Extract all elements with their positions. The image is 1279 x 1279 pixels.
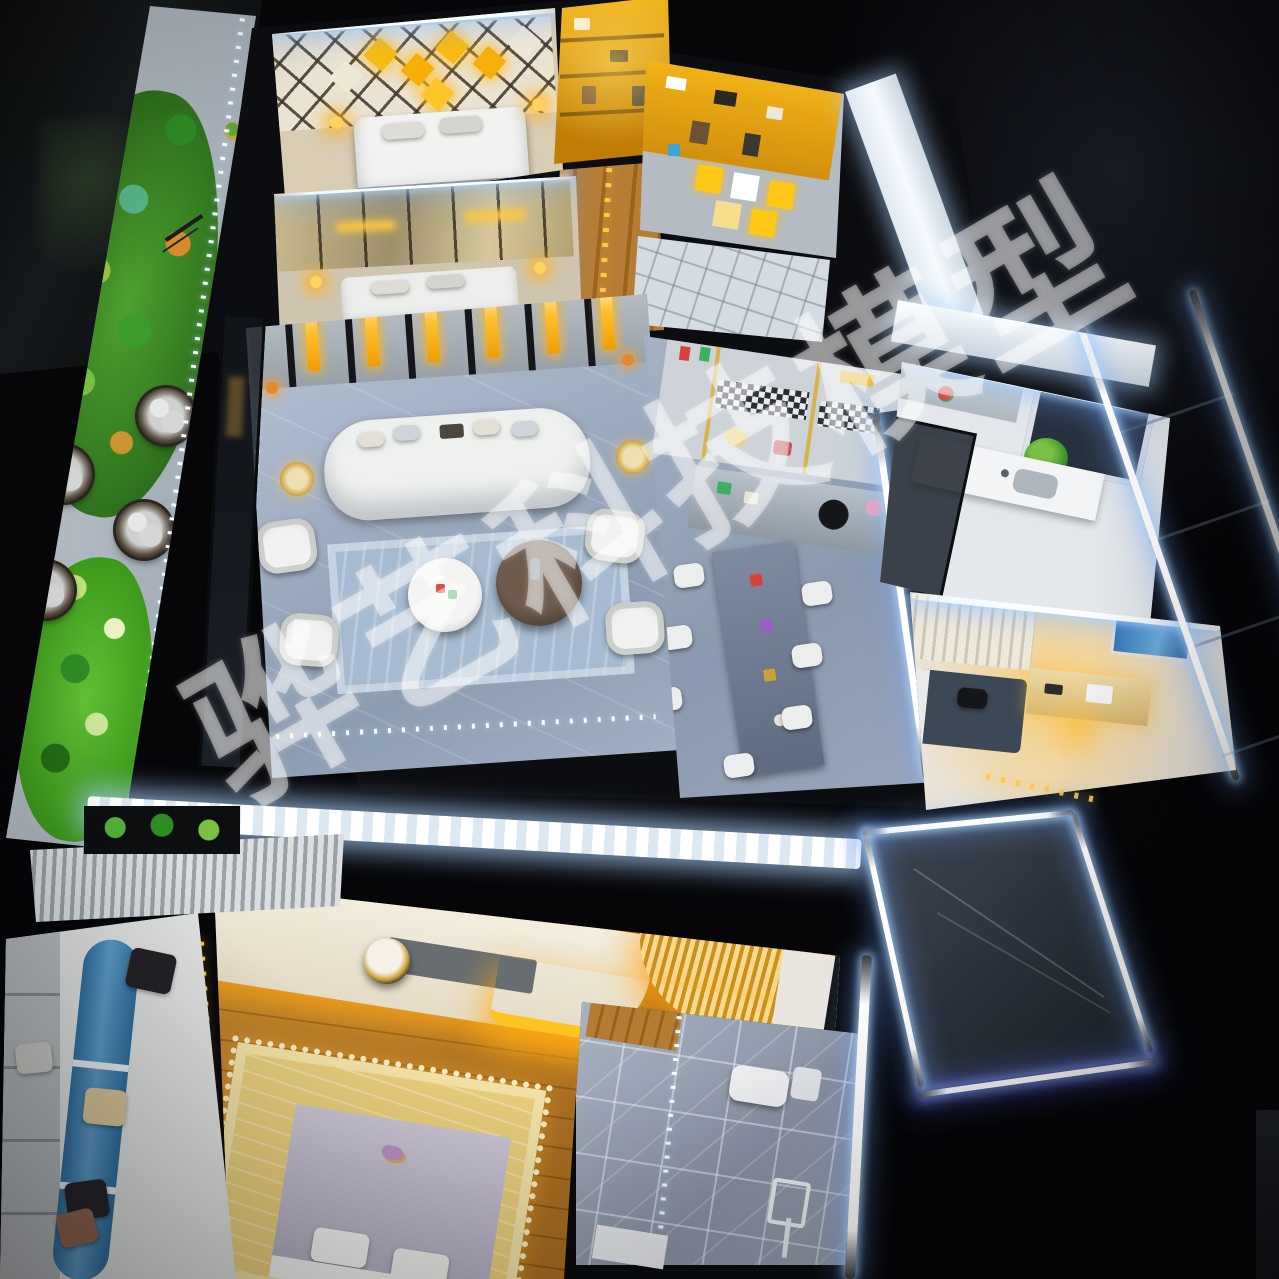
rattan-daybed — [36, 446, 92, 502]
sofa-pillow — [393, 425, 420, 442]
pillow — [426, 274, 465, 290]
glass-roof-panel — [832, 796, 1182, 1116]
bedside-lamp — [310, 276, 322, 288]
centerpiece — [760, 618, 774, 634]
display-cube — [766, 180, 796, 210]
flower-decor — [381, 1144, 405, 1161]
glass-gold-reflection — [226, 376, 245, 437]
gold-diamond — [472, 46, 506, 80]
display-cube — [748, 208, 778, 238]
gold-diamond — [435, 30, 469, 64]
gold-diamond — [364, 37, 398, 71]
gold-light-bar — [364, 310, 380, 367]
centerpiece — [763, 668, 777, 682]
headboard-gray — [0, 923, 60, 1279]
shelf-item — [713, 90, 737, 107]
toilet-tank — [790, 1066, 823, 1102]
sofa-tray — [439, 423, 464, 439]
planter-box — [84, 806, 240, 854]
centerpiece — [750, 573, 764, 587]
shelf-item — [689, 120, 710, 145]
shelf-item — [665, 76, 687, 91]
gold-diamond — [421, 77, 455, 111]
blue-item — [668, 144, 680, 156]
bolster-strap — [72, 1059, 128, 1072]
gold-diamond — [401, 53, 435, 87]
scratch-line — [913, 868, 1105, 998]
pillow — [439, 115, 482, 134]
shelf-item — [766, 106, 784, 120]
shelf-item — [742, 133, 761, 157]
cream-diamond — [329, 60, 363, 94]
side-table-gold — [280, 462, 314, 496]
rattan-daybed — [18, 562, 74, 618]
cream-diamond — [507, 25, 541, 59]
gold-light-bar — [544, 297, 560, 354]
bedside-lamp — [330, 116, 343, 129]
vanity-stool — [364, 938, 410, 984]
edge-tile-band — [1256, 1110, 1279, 1279]
potted-plant — [752, 916, 772, 936]
gold-light-bar — [424, 306, 440, 363]
flower-decor — [266, 382, 278, 394]
faucet — [1000, 469, 1009, 478]
dining-chair — [801, 580, 834, 607]
gold-light-bar — [484, 302, 500, 359]
pillow — [381, 121, 424, 140]
pillow-black — [956, 687, 988, 710]
bedside-lamp — [534, 262, 546, 274]
sink — [1011, 468, 1059, 501]
pillow-beige — [82, 1087, 128, 1127]
sofa-pillow — [358, 431, 385, 448]
bedside-lamp — [532, 98, 545, 111]
doorway-glow — [1046, 690, 1106, 770]
display-cube — [694, 164, 724, 194]
model-photo: 骅艺科技模型 — [0, 0, 1279, 1279]
pillow-gray — [15, 1041, 54, 1075]
bedroom-lower-left — [0, 893, 248, 1279]
pillow — [371, 279, 410, 295]
rattan-daybed — [116, 502, 172, 558]
pink-cake — [865, 498, 884, 517]
dining-chair — [781, 704, 814, 731]
dining-chair — [723, 752, 756, 779]
gold-light-bar — [600, 294, 616, 351]
bed-dark — [908, 668, 1027, 753]
headboard — [269, 1255, 488, 1279]
dining-chair — [791, 642, 824, 669]
scratch-line — [937, 912, 1111, 1014]
display-cube — [712, 200, 742, 230]
display-cube — [730, 172, 760, 202]
